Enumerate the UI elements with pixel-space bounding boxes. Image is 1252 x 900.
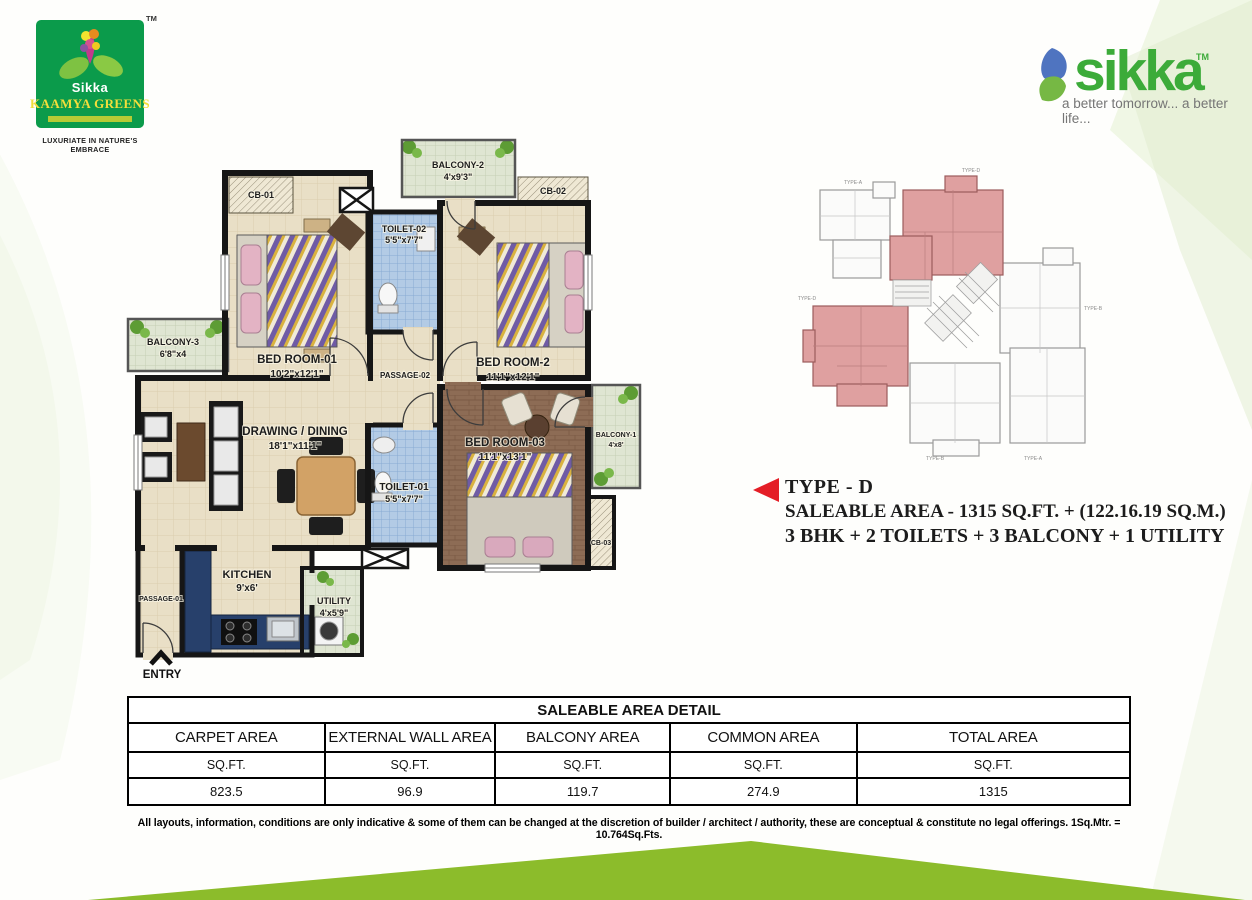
brochure-page: TM Sikka KAAMYA GREENS LUXURIATE IN NATU… — [0, 0, 1252, 900]
value-common: 274.9 — [670, 778, 857, 805]
table-title-row: SALEABLE AREA DETAIL — [128, 697, 1130, 723]
type-title: TYPE - D — [785, 476, 873, 499]
keyplan-label-1: TYPE-D — [962, 168, 981, 174]
kaamya-tm-mark: TM — [146, 14, 157, 23]
toilet-1-dims: 5'5"x7'7" — [385, 494, 423, 504]
shaft-1 — [340, 188, 373, 212]
keyplan-label-0: TYPE-A — [844, 180, 863, 186]
table-values-row: 823.5 96.9 119.7 274.9 1315 — [128, 778, 1130, 805]
keyplan-label-3: TYPE-B — [1084, 306, 1103, 312]
utility-fixtures — [315, 617, 343, 645]
sikka-tm-mark: TM — [1196, 52, 1209, 62]
table-title: SALEABLE AREA DETAIL — [128, 697, 1130, 723]
balcony-1-dims: 4'x8' — [608, 442, 623, 449]
utility-dims: 4'x5'9" — [320, 608, 349, 618]
cb-01-label: CB-01 — [248, 190, 274, 200]
sikka-tagline: a better tomorrow... a better life... — [1062, 96, 1252, 126]
unit-common: SQ.FT. — [670, 752, 857, 778]
key-plan: TYPE-A TYPE-D TYPE-D TYPE-B TYPE-B TYPE-… — [795, 148, 1107, 470]
value-balcony: 119.7 — [495, 778, 670, 805]
saleable-area-table: SALEABLE AREA DETAIL CARPET AREA EXTERNA… — [127, 696, 1131, 806]
flower-dot-5 — [92, 42, 100, 50]
keyplan-label-4: TYPE-B — [926, 456, 945, 462]
unit-carpet: SQ.FT. — [128, 752, 325, 778]
col-carpet-area: CARPET AREA — [128, 723, 325, 752]
bedroom-3-dims: 11'1"x13'1" — [479, 452, 532, 463]
col-external-wall-area: EXTERNAL WALL AREA — [325, 723, 496, 752]
sikka-wordmark: sikka — [1074, 38, 1202, 104]
drawing-dims: 18'1"x11'1" — [269, 441, 322, 452]
bedroom-1-label: BED ROOM-01 — [257, 354, 337, 366]
flower-dot-4 — [80, 44, 88, 52]
type-arrow-icon — [753, 478, 779, 502]
col-balcony-area: BALCONY AREA — [495, 723, 670, 752]
kitchen-label: KITCHEN — [223, 569, 272, 581]
floor-plan: BALCONY-2 4'x9'3" CB-01 CB-02 TOILET-02 … — [125, 135, 715, 680]
value-external: 96.9 — [325, 778, 496, 805]
passage-1-label: PASSAGE-01 — [139, 596, 183, 603]
value-carpet: 823.5 — [128, 778, 325, 805]
unit-balcony: SQ.FT. — [495, 752, 670, 778]
kitchen-dims: 9'x6' — [236, 583, 257, 594]
left-swoosh-2 — [0, 60, 91, 800]
bedroom-1-dims: 10'2"x12'1" — [270, 369, 323, 380]
utility-label: UTILITY — [317, 596, 351, 606]
keyplan-label-2: TYPE-D — [798, 296, 817, 302]
balcony-2-label: BALCONY-2 — [432, 160, 484, 170]
passage-2-label: PASSAGE-02 — [380, 371, 431, 380]
coffee-table — [177, 423, 205, 481]
stove — [221, 619, 257, 645]
toilet-1-label: TOILET-01 — [379, 482, 429, 493]
bedroom-3-label: BED ROOM-03 — [465, 437, 545, 449]
bottom-green-band — [88, 841, 1245, 900]
disclaimer-text: All layouts, information, conditions are… — [112, 817, 1146, 841]
kaamya-sikka-text: Sikka — [36, 80, 144, 95]
cb-03-label: CB-03 — [591, 540, 611, 547]
kaamya-greens-text: KAAMYA GREENS — [30, 96, 150, 112]
leaf-left — [56, 53, 93, 84]
bedroom-2-dims: 11'1"x12'1" — [487, 372, 540, 383]
table-header-row: CARPET AREA EXTERNAL WALL AREA BALCONY A… — [128, 723, 1130, 752]
balcony-3-dims: 6'8"x4 — [160, 349, 186, 359]
bed-1 — [237, 219, 337, 362]
value-total: 1315 — [857, 778, 1130, 805]
type-config-line: 3 BHK + 2 TOILETS + 3 BALCONY + 1 UTILIT… — [785, 525, 1224, 548]
shaft-2 — [362, 549, 408, 568]
cb-03-closet — [588, 497, 614, 568]
logo-underline-bar — [48, 116, 132, 122]
type-area-line: SALEABLE AREA - 1315 SQ.FT. + (122.16.19… — [785, 501, 1226, 523]
balcony-1-label: BALCONY-1 — [596, 432, 637, 439]
unit-total: SQ.FT. — [857, 752, 1130, 778]
keyplan-label-5: TYPE-A — [1024, 456, 1043, 462]
cb-02-label: CB-02 — [540, 186, 566, 196]
toilet-2-label: TOILET-02 — [382, 224, 426, 234]
flower-dot-2 — [89, 29, 99, 39]
col-total-area: TOTAL AREA — [857, 723, 1130, 752]
bedroom-2-label: BED ROOM-2 — [476, 357, 549, 369]
bed-3 — [467, 453, 572, 565]
table-units-row: SQ.FT. SQ.FT. SQ.FT. SQ.FT. SQ.FT. — [128, 752, 1130, 778]
col-common-area: COMMON AREA — [670, 723, 857, 752]
balcony-2-dims: 4'x9'3" — [444, 172, 473, 182]
leaf-right — [90, 51, 127, 81]
leaf-blue — [1041, 48, 1067, 81]
entry-label: ENTRY — [143, 669, 182, 680]
toilet-2-dims: 5'5"x7'7" — [385, 235, 423, 245]
drawing-label: DRAWING / DINING — [242, 426, 347, 438]
balcony-3-label: BALCONY-3 — [147, 337, 199, 347]
unit-external: SQ.FT. — [325, 752, 496, 778]
